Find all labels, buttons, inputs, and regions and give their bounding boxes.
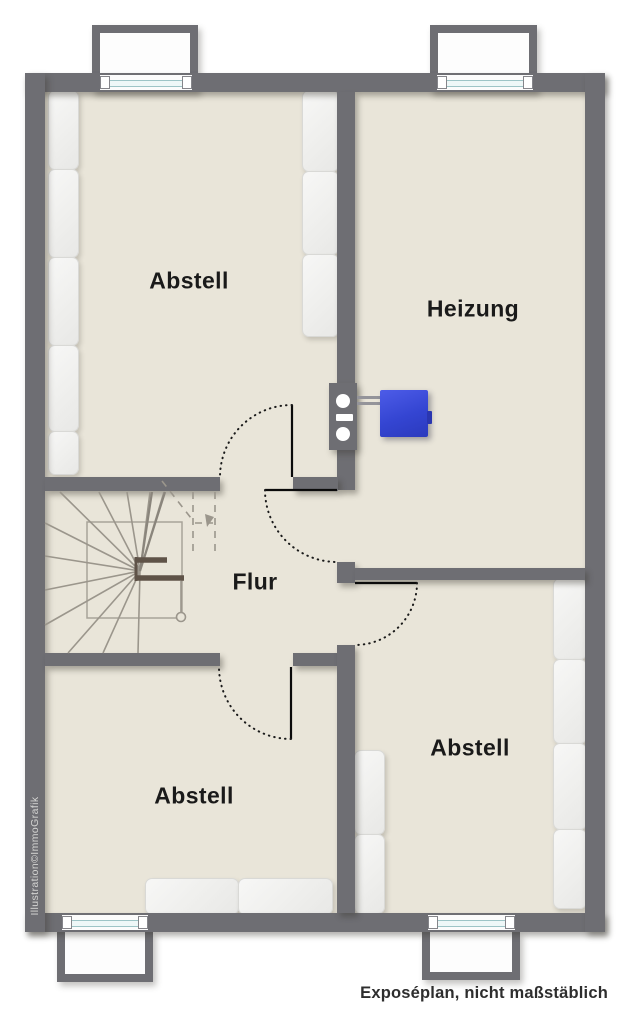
- door-abstell-bottom-left: [219, 667, 291, 739]
- room-label-abstell-bottom-right: Abstell: [430, 735, 509, 762]
- room-label-flur: Flur: [232, 569, 277, 596]
- staircase: [45, 481, 215, 653]
- door-abstell-top-left: [220, 405, 292, 477]
- floorplan: Abstell Heizung Flur Abstell Abstell Ill…: [0, 0, 630, 1024]
- illustrator-watermark: Illustration©ImmoGrafik: [29, 796, 41, 915]
- door-abstell-bottom-right: [355, 583, 417, 645]
- door-heizung: [265, 490, 337, 562]
- room-label-abstell-top-left: Abstell: [149, 268, 228, 295]
- room-label-abstell-bottom-left: Abstell: [154, 783, 233, 810]
- stairs-and-doors-overlay: [0, 0, 630, 1024]
- room-label-heizung: Heizung: [427, 296, 519, 323]
- plan-caption: Exposéplan, nicht maßstäblich: [360, 984, 608, 1003]
